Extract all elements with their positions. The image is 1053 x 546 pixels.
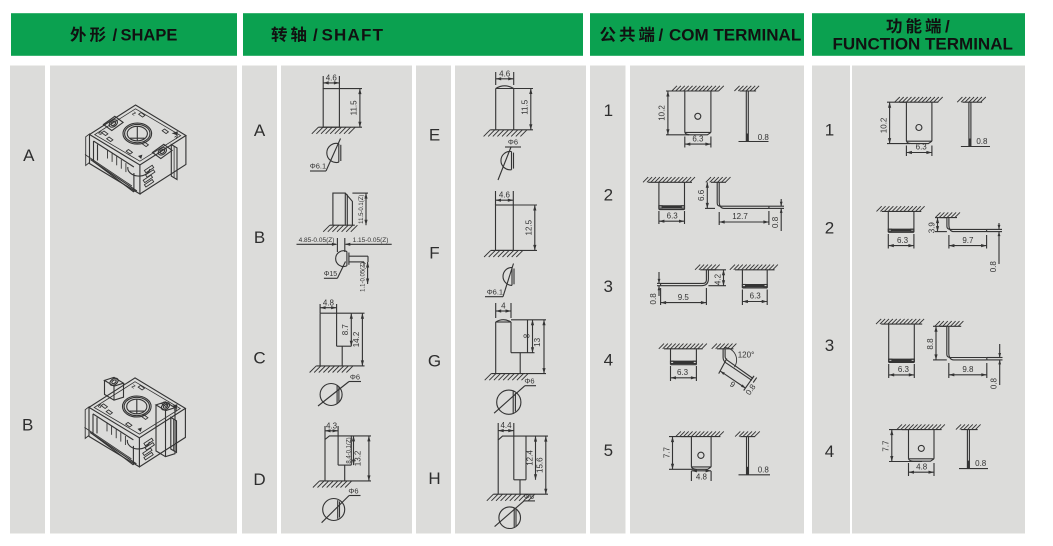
svg-text:4.6: 4.6 (499, 69, 511, 78)
svg-text:G: G (428, 352, 441, 371)
svg-text:4.4: 4.4 (500, 421, 512, 430)
svg-text:B: B (254, 228, 265, 247)
svg-text:Φ6: Φ6 (524, 492, 534, 501)
svg-text:Φ6.1: Φ6.1 (310, 162, 326, 171)
svg-text:SHAFT: SHAFT (322, 26, 385, 45)
svg-text:/: / (659, 26, 664, 45)
svg-text:4.6: 4.6 (499, 191, 511, 200)
svg-text:12.4: 12.4 (525, 450, 534, 466)
svg-text:0.8: 0.8 (771, 216, 780, 228)
svg-text:3.9: 3.9 (927, 222, 936, 234)
svg-text:1: 1 (825, 121, 834, 140)
svg-text:15.6: 15.6 (536, 457, 545, 473)
svg-text:0.8: 0.8 (976, 137, 988, 146)
svg-text:2: 2 (604, 186, 613, 205)
svg-text:/: / (113, 26, 118, 45)
svg-text:A: A (254, 121, 266, 140)
svg-text:/: / (945, 17, 950, 36)
svg-text:10.2: 10.2 (879, 117, 888, 133)
svg-text:0.8: 0.8 (990, 377, 999, 389)
svg-text:12.5: 12.5 (525, 219, 534, 235)
svg-text:8.4-0.1(Z): 8.4-0.1(Z) (347, 437, 353, 463)
svg-text:B: B (22, 416, 33, 435)
svg-text:Φ6: Φ6 (348, 487, 358, 496)
svg-text:13.2: 13.2 (353, 450, 362, 466)
svg-text:6.6: 6.6 (697, 189, 706, 201)
svg-text:3: 3 (825, 336, 834, 355)
svg-text:4.6: 4.6 (326, 74, 338, 83)
svg-text:6.3: 6.3 (750, 292, 762, 301)
svg-text:A: A (23, 146, 35, 165)
svg-text:8.7: 8.7 (341, 324, 350, 336)
svg-text:2: 2 (825, 219, 834, 238)
svg-text:11.5: 11.5 (521, 99, 530, 115)
svg-text:C: C (253, 349, 265, 368)
svg-text:Φ6: Φ6 (508, 138, 518, 147)
svg-text:6.3: 6.3 (898, 365, 910, 374)
svg-text:1.1-0.05(Z): 1.1-0.05(Z) (360, 262, 366, 292)
svg-text:8: 8 (522, 333, 531, 338)
svg-text:9.7: 9.7 (962, 236, 974, 245)
svg-text:/: / (313, 26, 318, 45)
svg-text:Φ6.1: Φ6.1 (487, 287, 503, 296)
svg-text:1.15-0.05(Z): 1.15-0.05(Z) (353, 237, 389, 244)
svg-text:5: 5 (604, 441, 613, 460)
svg-text:0.8: 0.8 (758, 465, 770, 474)
svg-text:4.3: 4.3 (326, 421, 338, 430)
svg-text:0.8: 0.8 (649, 293, 658, 305)
svg-text:H: H (428, 469, 440, 488)
svg-text:0.8: 0.8 (975, 459, 987, 468)
svg-text:4: 4 (604, 351, 613, 370)
svg-text:4.85-0.05(Z): 4.85-0.05(Z) (299, 237, 335, 244)
svg-text:E: E (429, 125, 440, 144)
svg-text:Φ6: Φ6 (350, 373, 360, 382)
svg-text:120°: 120° (738, 351, 755, 360)
svg-text:6.3: 6.3 (677, 368, 689, 377)
svg-text:4: 4 (501, 302, 506, 311)
svg-text:7.7: 7.7 (882, 440, 891, 452)
svg-text:6.3: 6.3 (916, 143, 928, 152)
svg-text:9.5: 9.5 (678, 293, 690, 302)
svg-text:3: 3 (603, 277, 612, 296)
svg-text:COM TERMINAL: COM TERMINAL (669, 26, 801, 45)
svg-text:11.5-0.1(Z): 11.5-0.1(Z) (359, 195, 365, 224)
svg-text:Φ6: Φ6 (524, 377, 534, 386)
svg-text:1: 1 (604, 101, 613, 120)
svg-text:0.8: 0.8 (758, 133, 770, 142)
svg-text:4: 4 (825, 442, 834, 461)
svg-text:10.2: 10.2 (658, 105, 667, 121)
svg-text:4.8: 4.8 (696, 472, 708, 481)
svg-text:4.8: 4.8 (916, 463, 928, 472)
svg-text:Φ15: Φ15 (324, 271, 337, 278)
svg-text:7.7: 7.7 (662, 446, 671, 458)
svg-text:0.8: 0.8 (989, 261, 998, 273)
svg-text:4.2: 4.2 (713, 273, 722, 285)
svg-text:SHAPE: SHAPE (121, 27, 178, 45)
svg-text:6.3: 6.3 (692, 134, 704, 143)
svg-text:D: D (253, 470, 265, 489)
svg-text:12.7: 12.7 (732, 212, 748, 221)
svg-text:6.3: 6.3 (667, 211, 679, 220)
svg-text:11.5: 11.5 (350, 100, 359, 116)
svg-text:F: F (429, 243, 439, 262)
svg-text:9.8: 9.8 (962, 365, 974, 374)
svg-text:13: 13 (533, 337, 542, 346)
svg-text:4.8: 4.8 (323, 298, 335, 307)
svg-text:FUNCTION TERMINAL: FUNCTION TERMINAL (833, 34, 1013, 53)
svg-text:14.2: 14.2 (352, 331, 361, 347)
svg-text:8.8: 8.8 (926, 338, 935, 350)
svg-text:6.3: 6.3 (897, 236, 909, 245)
